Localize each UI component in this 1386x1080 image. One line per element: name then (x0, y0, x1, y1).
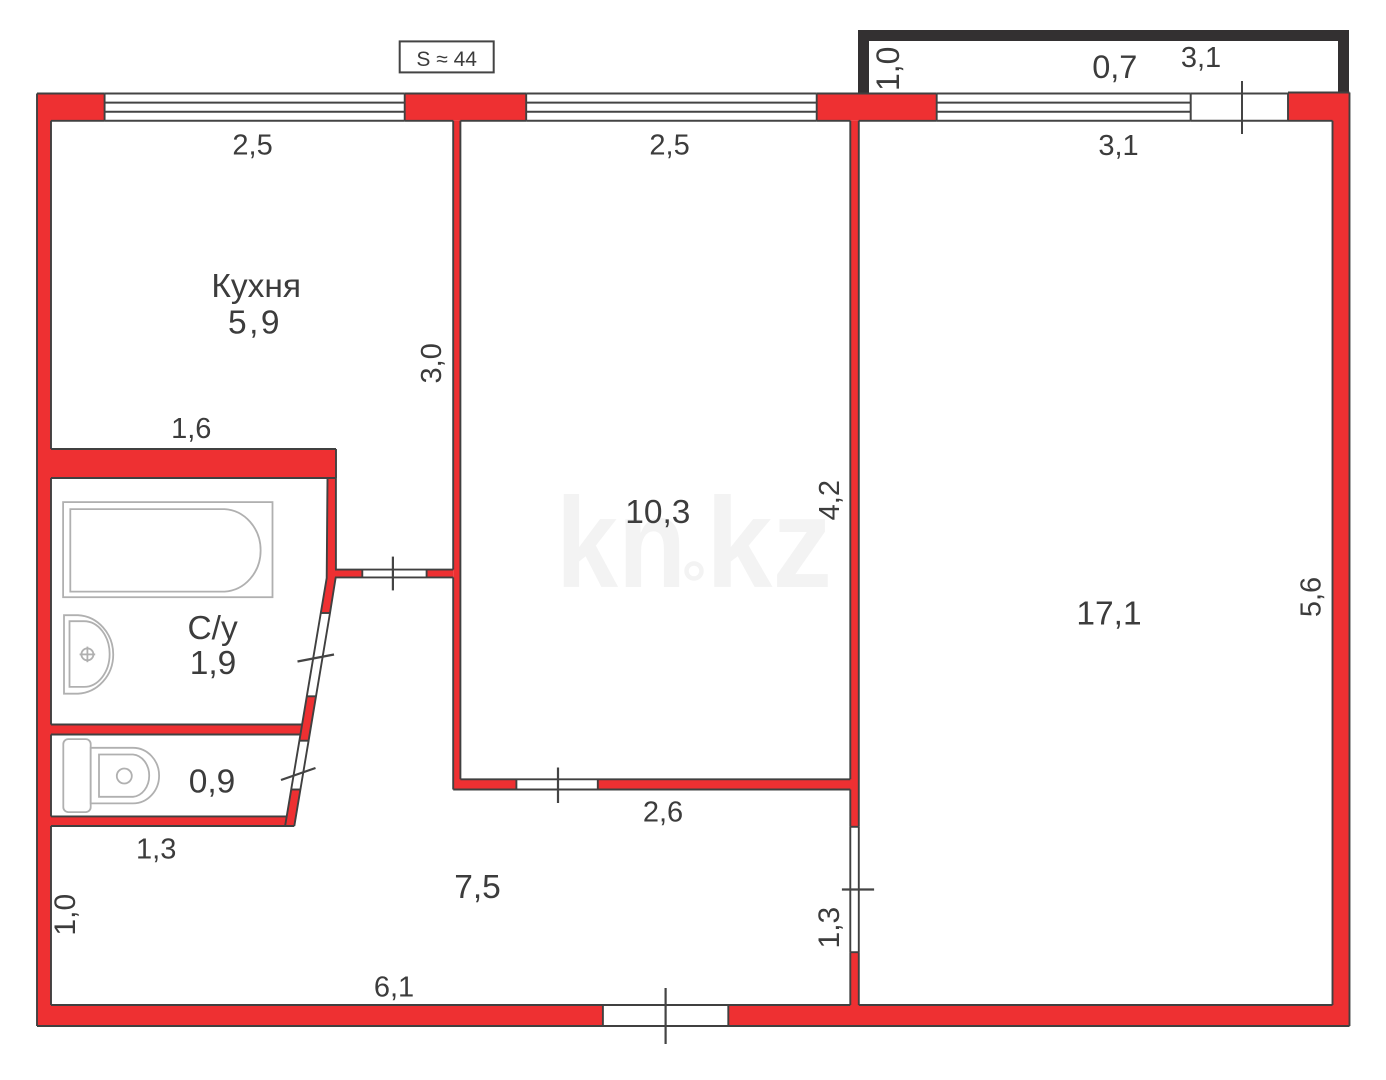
svg-text:3,0: 3,0 (416, 343, 448, 383)
svg-text:1,3: 1,3 (136, 834, 176, 866)
svg-text:1,0: 1,0 (49, 894, 82, 936)
svg-text:2,5: 2,5 (232, 130, 272, 162)
svg-text:1,9: 1,9 (190, 645, 237, 682)
svg-text:17,1: 17,1 (1076, 596, 1141, 633)
svg-text:2,5: 2,5 (649, 130, 689, 162)
svg-text:Кухня: Кухня (211, 268, 301, 305)
svg-text:3,1: 3,1 (1098, 130, 1138, 162)
svg-text:5,9: 5,9 (228, 305, 282, 342)
svg-text:С/у: С/у (187, 610, 238, 647)
svg-text:0,9: 0,9 (189, 764, 236, 801)
svg-text:1,0: 1,0 (870, 47, 906, 91)
svg-text:6,1: 6,1 (374, 972, 414, 1004)
svg-text:7,5: 7,5 (454, 869, 501, 906)
svg-text:1,6: 1,6 (171, 413, 211, 445)
svg-text:1,3: 1,3 (813, 907, 846, 949)
svg-text:4,2: 4,2 (814, 480, 846, 520)
svg-text:5,6: 5,6 (1295, 577, 1327, 617)
svg-text:3,1: 3,1 (1181, 42, 1221, 74)
svg-text:S ≈ 44: S ≈ 44 (416, 48, 477, 71)
svg-text:10,3: 10,3 (625, 494, 690, 531)
svg-text:2,6: 2,6 (643, 796, 683, 828)
svg-text:0,7: 0,7 (1092, 49, 1137, 85)
